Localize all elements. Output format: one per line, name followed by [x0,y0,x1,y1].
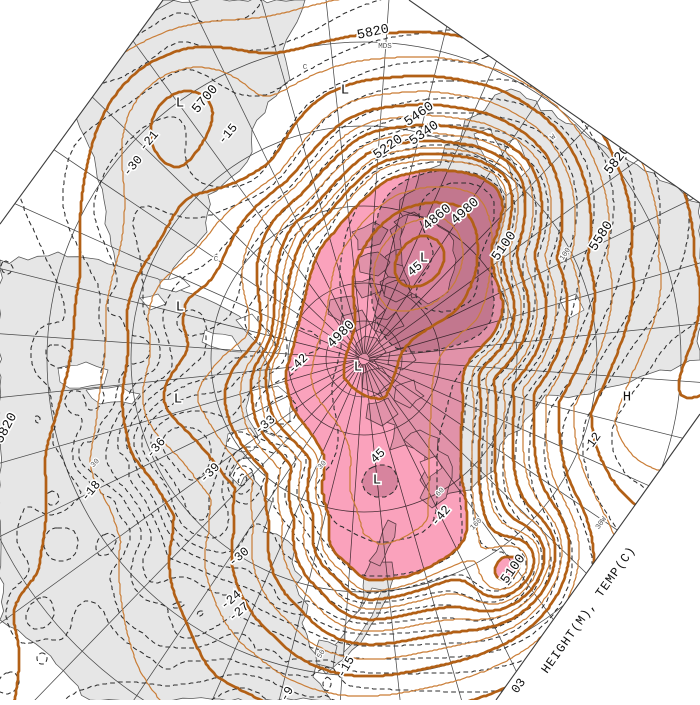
svg-text:L: L [354,360,362,376]
svg-text:H: H [623,390,631,406]
svg-text:L: L [341,83,349,99]
svg-text:C: C [214,256,219,264]
svg-text:C: C [303,64,308,72]
svg-text:L: L [176,300,184,316]
svg-text:L: L [373,473,381,489]
svg-text:MDS: MDS [378,43,392,51]
svg-text:L: L [176,96,184,112]
svg-text:L: L [420,251,428,267]
svg-text:L: L [174,392,182,408]
